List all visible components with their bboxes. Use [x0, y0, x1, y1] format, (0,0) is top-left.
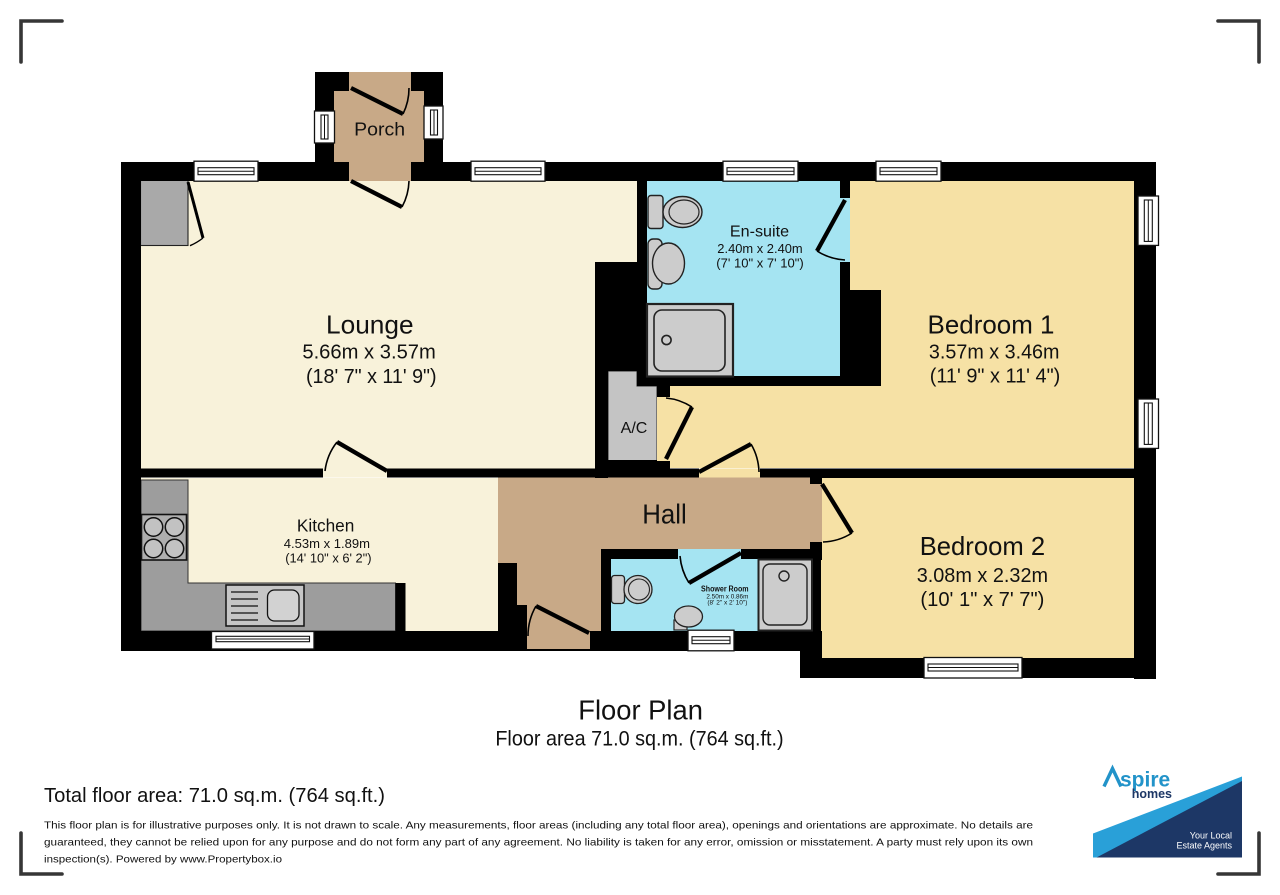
svg-text:Total floor area: 71.0 sq.m. (: Total floor area: 71.0 sq.m. (764 sq.ft.…	[44, 785, 385, 807]
svg-text:3.08m x 2.32m: 3.08m x 2.32m	[917, 565, 1048, 587]
svg-text:guaranteed, they cannot be rel: guaranteed, they cannot be relied upon f…	[44, 837, 1033, 849]
svg-text:(7' 10" x 7' 10"): (7' 10" x 7' 10")	[716, 256, 803, 271]
svg-text:(14' 10" x 6' 2"): (14' 10" x 6' 2")	[285, 551, 371, 566]
svg-text:Bedroom 1: Bedroom 1	[928, 310, 1055, 340]
svg-text:(18' 7" x 11' 9"): (18' 7" x 11' 9")	[306, 366, 437, 388]
svg-text:Floor area 71.0 sq.m. (764 sq.: Floor area 71.0 sq.m. (764 sq.ft.)	[495, 728, 783, 751]
svg-text:2.40m x 2.40m: 2.40m x 2.40m	[717, 241, 802, 256]
svg-text:En-suite: En-suite	[730, 224, 789, 241]
svg-text:This floor plan is for illustr: This floor plan is for illustrative purp…	[44, 820, 1033, 832]
svg-text:Lounge: Lounge	[326, 310, 414, 340]
svg-text:(10' 1" x 7' 7"): (10' 1" x 7' 7")	[920, 589, 1044, 611]
svg-text:Shower Room: Shower Room	[701, 585, 749, 594]
svg-text:Porch: Porch	[354, 120, 405, 140]
svg-text:Bedroom 2: Bedroom 2	[920, 531, 1045, 561]
svg-text:Hall: Hall	[642, 499, 687, 530]
svg-text:Your Local: Your Local	[1190, 831, 1232, 841]
svg-text:(8' 2" x 2' 10"): (8' 2" x 2' 10")	[707, 600, 747, 607]
svg-text:(11' 9" x 11' 4"): (11' 9" x 11' 4")	[930, 366, 1061, 388]
svg-text:inspection(s). Powered by www.: inspection(s). Powered by www.Propertybo…	[44, 854, 282, 866]
svg-text:homes: homes	[1132, 787, 1172, 801]
svg-text:Estate Agents: Estate Agents	[1176, 841, 1232, 851]
svg-text:3.57m x 3.46m: 3.57m x 3.46m	[929, 342, 1060, 364]
svg-text:5.66m x 3.57m: 5.66m x 3.57m	[302, 342, 436, 364]
svg-text:A/C: A/C	[621, 420, 648, 437]
svg-text:4.53m x 1.89m: 4.53m x 1.89m	[284, 536, 370, 551]
svg-text:Floor Plan: Floor Plan	[578, 695, 703, 726]
svg-text:Kitchen: Kitchen	[297, 516, 354, 536]
